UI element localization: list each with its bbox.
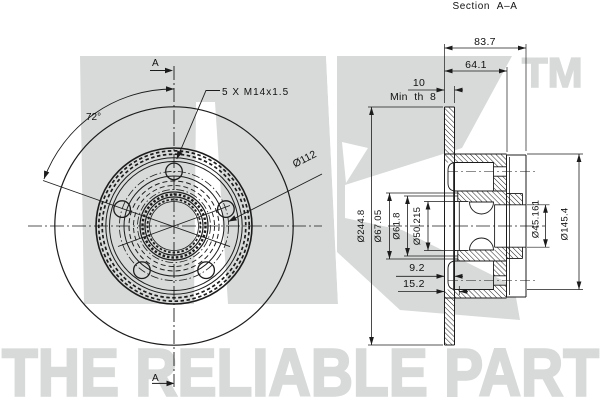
svg-text:Ø45.161: Ø45.161 bbox=[531, 200, 542, 239]
svg-text:A: A bbox=[152, 373, 159, 384]
svg-text:10: 10 bbox=[413, 77, 425, 89]
svg-text:9.2: 9.2 bbox=[409, 262, 425, 274]
svg-text:TM: TM bbox=[522, 49, 583, 96]
svg-text:Ø50.215: Ø50.215 bbox=[412, 207, 423, 246]
svg-text:72°: 72° bbox=[86, 112, 101, 123]
svg-text:5 X M14x1.5: 5 X M14x1.5 bbox=[222, 87, 289, 98]
svg-text:15.2: 15.2 bbox=[403, 278, 425, 290]
svg-text:83.7: 83.7 bbox=[474, 36, 496, 48]
svg-text:Section A–A: Section A–A bbox=[452, 1, 517, 12]
svg-text:A: A bbox=[152, 58, 159, 69]
svg-text:Ø67.05: Ø67.05 bbox=[373, 210, 384, 243]
svg-text:Ø61.8: Ø61.8 bbox=[392, 212, 403, 239]
svg-text:Min th 8: Min th 8 bbox=[390, 91, 436, 103]
svg-text:64.1: 64.1 bbox=[465, 59, 487, 71]
svg-text:Ø145.4: Ø145.4 bbox=[560, 208, 571, 241]
svg-text:Ø244.8: Ø244.8 bbox=[356, 210, 367, 243]
svg-text:THE RELIABLE PART: THE RELIABLE PART bbox=[2, 336, 599, 400]
